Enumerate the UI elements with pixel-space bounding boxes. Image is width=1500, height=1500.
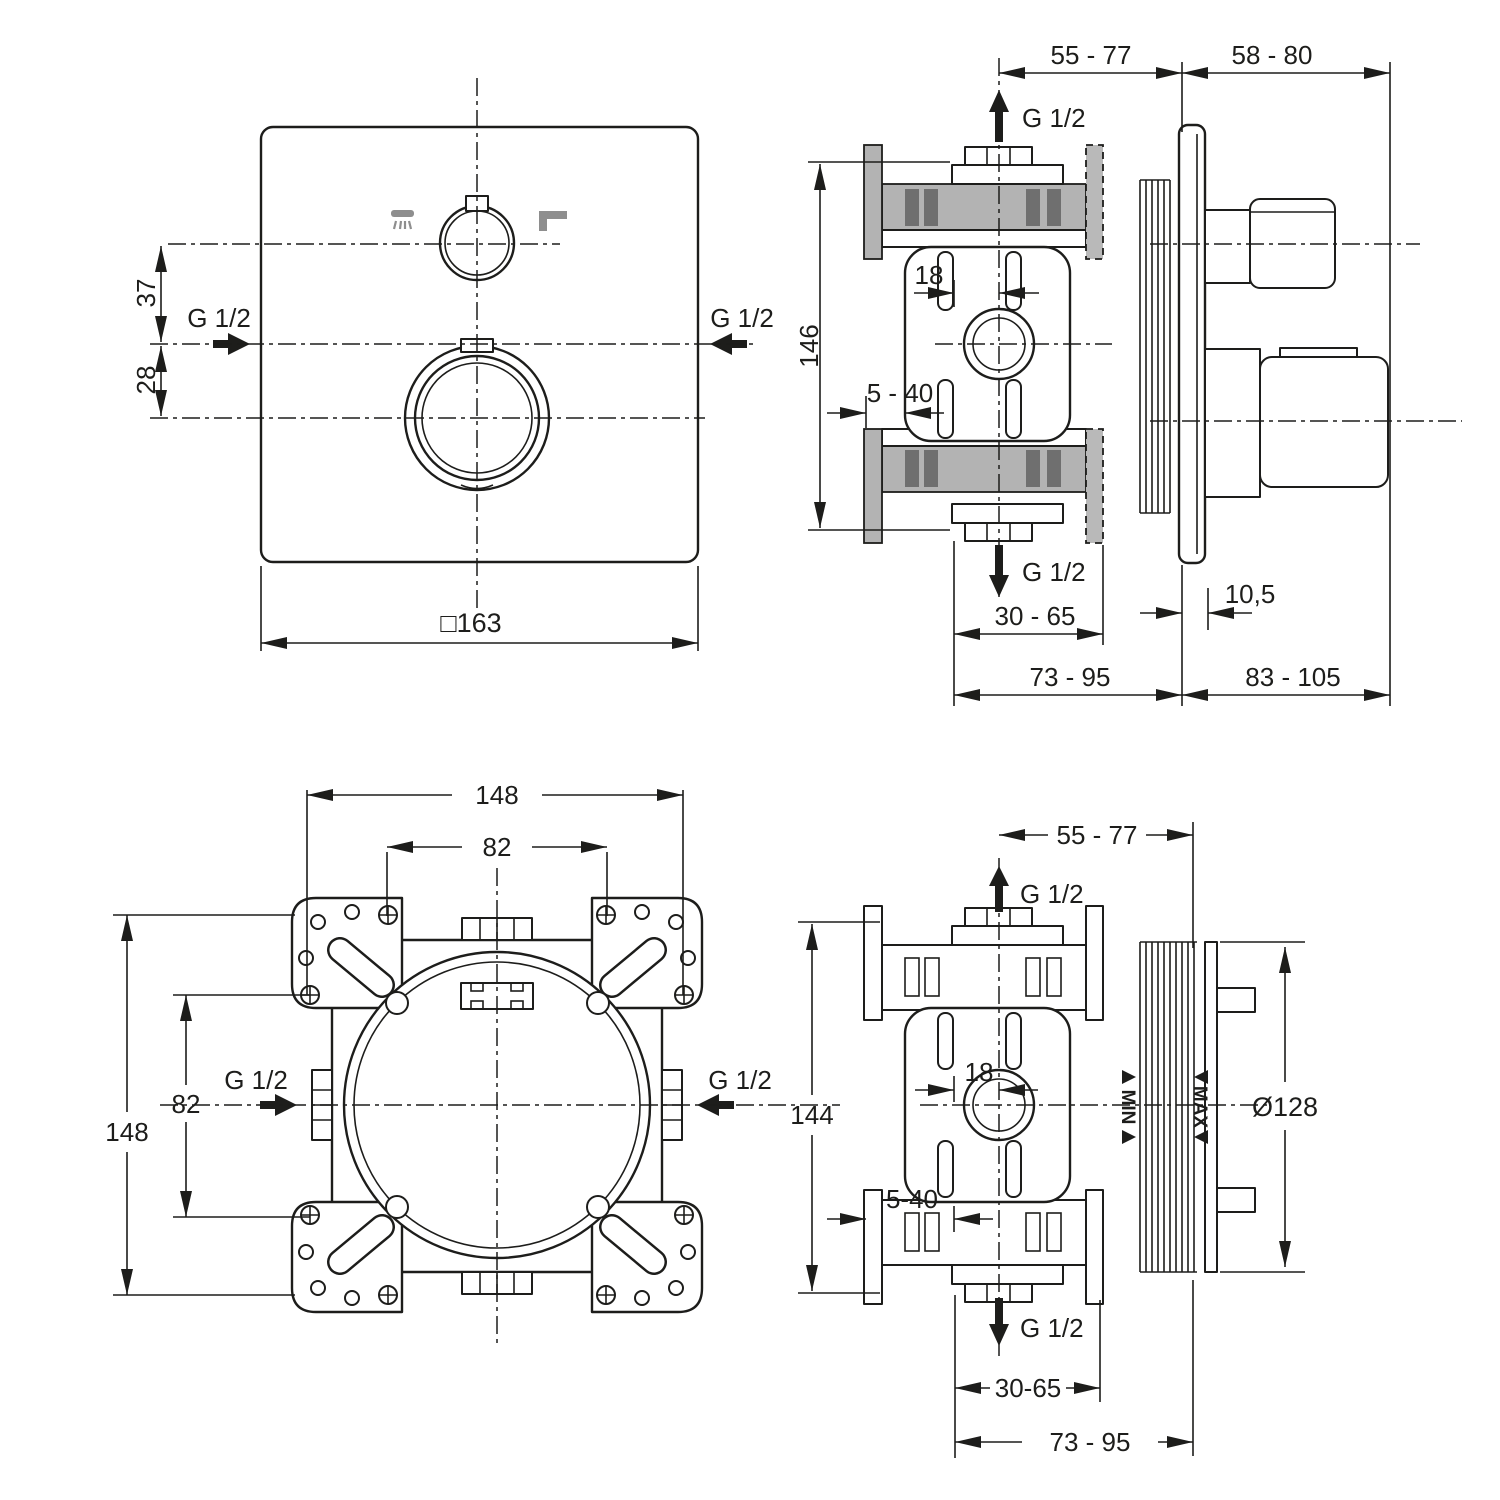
dim-28-label: 28 <box>131 366 161 395</box>
faceplate-profile <box>1179 125 1205 563</box>
dim-73-95-label: 73 - 95 <box>1050 1427 1131 1457</box>
housing-hole <box>587 1196 609 1218</box>
dim-58-80-label: 58 - 80 <box>1232 40 1313 70</box>
dim-37-label: 37 <box>131 279 161 308</box>
mounting-bracket-top-right <box>592 898 702 1008</box>
cover-tab <box>1217 1188 1255 1212</box>
dim-30-65-label: 30 - 65 <box>995 601 1076 631</box>
mounting-bracket-top-left <box>292 898 402 1008</box>
housing-hole <box>386 1196 408 1218</box>
dim-5-40-label: 5 - 40 <box>867 378 934 408</box>
g-half-right-label: G 1/2 <box>708 1065 772 1095</box>
g-half-bottom-label: G 1/2 <box>1022 557 1086 587</box>
drawing-canvas: G 1/2 G 1/2 37 28 □163 <box>0 0 1500 1500</box>
dim-left-82-label: 82 <box>172 1089 201 1119</box>
dim-55-77-label: 55 - 77 <box>1051 40 1132 70</box>
max-label: MAX <box>1189 1086 1210 1129</box>
mounting-bracket-bottom-left <box>292 1202 402 1312</box>
g-half-top-label: G 1/2 <box>1020 879 1084 909</box>
dim-30-65-label: 30-65 <box>995 1373 1062 1403</box>
g-half-right-label: G 1/2 <box>710 303 774 333</box>
dim-163-label: □163 <box>440 608 501 638</box>
g-half-bottom-label: G 1/2 <box>1020 1313 1084 1343</box>
housing-hole <box>386 992 408 1014</box>
housing-hole <box>587 992 609 1014</box>
g-half-top-label: G 1/2 <box>1022 103 1086 133</box>
dim-top-82-label: 82 <box>483 832 512 862</box>
dim-10-5-label: 10,5 <box>1225 579 1276 609</box>
thermostat-knob-profile <box>1205 348 1388 497</box>
dim-83-105-label: 83 - 105 <box>1245 662 1340 692</box>
dim-5-40-label: 5-40 <box>886 1184 938 1214</box>
dim-144-label: 144 <box>790 1100 833 1130</box>
g-half-left-label: G 1/2 <box>187 303 251 333</box>
dim-left-148-label: 148 <box>105 1117 148 1147</box>
dim-top-148-label: 148 <box>475 780 518 810</box>
dim-18-label: 18 <box>965 1057 994 1087</box>
technical-drawing-page: G 1/2 G 1/2 37 28 □163 <box>0 0 1500 1500</box>
bracket-bar-top <box>882 230 1086 247</box>
dim-146-label: 146 <box>794 324 824 367</box>
mounting-bracket-bottom-right <box>592 1202 702 1312</box>
bracket-bar-top <box>882 945 1086 1010</box>
dim-73-95-label: 73 - 95 <box>1030 662 1111 692</box>
dim-dia-128-label: Ø128 <box>1252 1092 1318 1122</box>
g-half-left-label: G 1/2 <box>224 1065 288 1095</box>
cover-tab <box>1217 988 1255 1012</box>
dim-55-77-label: 55 - 77 <box>1057 820 1138 850</box>
dim-18-label: 18 <box>915 260 944 290</box>
min-label: MIN <box>1117 1090 1138 1125</box>
